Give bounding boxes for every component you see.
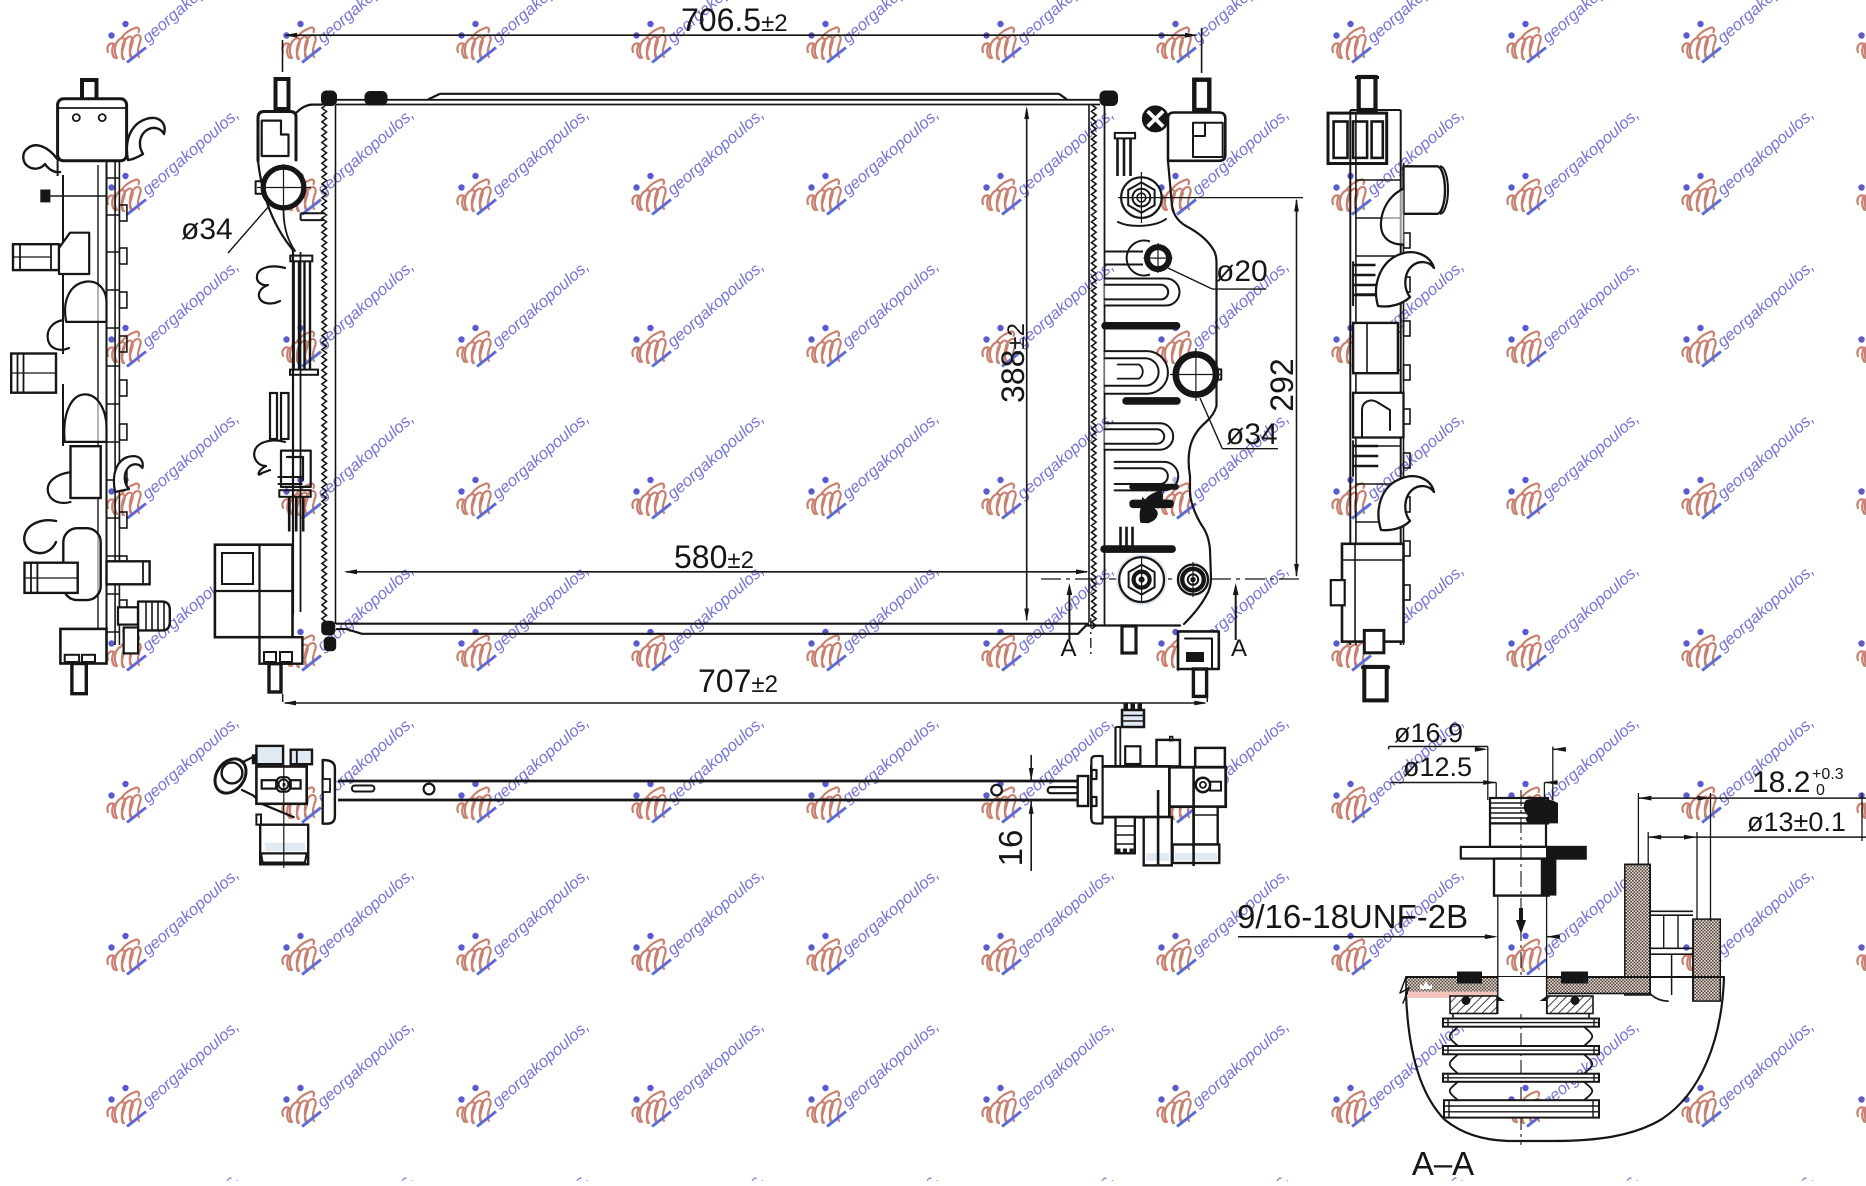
svg-text:292: 292 xyxy=(1264,358,1300,411)
svg-text:+0.3: +0.3 xyxy=(1812,766,1844,783)
svg-text:16: 16 xyxy=(992,830,1029,867)
svg-text:ø20: ø20 xyxy=(1216,255,1268,288)
svg-text:ø12.5: ø12.5 xyxy=(1403,752,1472,782)
svg-text:0: 0 xyxy=(1816,782,1825,799)
svg-text:ø16.9: ø16.9 xyxy=(1394,718,1463,748)
svg-text:9/16-18UNF-2B: 9/16-18UNF-2B xyxy=(1237,898,1468,935)
svg-text:ø34: ø34 xyxy=(181,213,233,246)
svg-text:ø13±0.1: ø13±0.1 xyxy=(1747,807,1846,837)
svg-text:ø34: ø34 xyxy=(1226,418,1278,451)
svg-text:A: A xyxy=(1060,635,1076,662)
svg-text:18.2: 18.2 xyxy=(1752,766,1810,799)
svg-text:A: A xyxy=(1231,635,1247,662)
svg-text:A–A: A–A xyxy=(1412,1145,1474,1181)
